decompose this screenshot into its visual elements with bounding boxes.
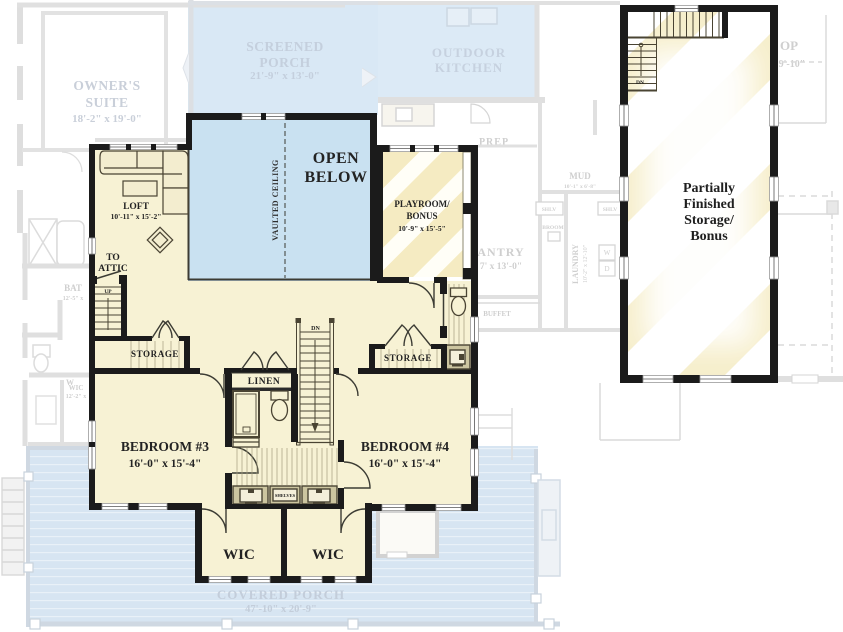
svg-text:STORAGE: STORAGE — [384, 353, 432, 363]
svg-text:BEDROOM #3: BEDROOM #3 — [121, 439, 209, 454]
svg-text:SHLV: SHLV — [542, 207, 557, 213]
svg-text:SCREENED: SCREENED — [246, 39, 324, 54]
svg-text:DN: DN — [311, 326, 320, 332]
svg-text:10'-2" x 12'-10": 10'-2" x 12'-10" — [583, 244, 589, 283]
svg-text:18'-2" x 19'-0": 18'-2" x 19'-0" — [72, 113, 142, 125]
svg-text:WIC: WIC — [69, 384, 84, 392]
svg-text:10'-1" x 6'-8": 10'-1" x 6'-8" — [564, 184, 596, 190]
svg-text:BEDROOM #4: BEDROOM #4 — [361, 439, 449, 454]
svg-text:TO: TO — [106, 253, 120, 263]
svg-text:OWNER'S: OWNER'S — [73, 78, 140, 93]
svg-text:LAUNDRY: LAUNDRY — [571, 244, 580, 284]
svg-text:21'-9" x 13'-0": 21'-9" x 13'-0" — [250, 70, 320, 82]
svg-text:Finished: Finished — [683, 197, 735, 212]
svg-text:OPEN: OPEN — [313, 150, 359, 167]
svg-text:OP: OP — [780, 38, 798, 53]
svg-text:PLAYROOM/: PLAYROOM/ — [394, 199, 450, 209]
svg-text:BONUS: BONUS — [406, 211, 437, 221]
svg-text:D: D — [604, 265, 609, 273]
svg-text:Partially: Partially — [683, 181, 735, 196]
svg-text:ATTIC: ATTIC — [98, 264, 128, 274]
svg-text:OUTDOOR: OUTDOOR — [432, 45, 506, 60]
svg-text:47'-10" x 20'-9": 47'-10" x 20'-9" — [245, 604, 317, 615]
svg-text:16'-0" x 15'-4": 16'-0" x 15'-4" — [369, 458, 442, 470]
svg-text:SUITE: SUITE — [85, 95, 128, 110]
svg-text:SHELVES: SHELVES — [275, 493, 296, 498]
svg-text:WIC: WIC — [223, 547, 255, 563]
svg-text:9'-10": 9'-10" — [779, 59, 806, 70]
svg-text:16'-0" x 15'-4": 16'-0" x 15'-4" — [129, 458, 202, 470]
svg-text:VAULTED CEILING: VAULTED CEILING — [271, 159, 280, 241]
svg-text:MUD: MUD — [569, 171, 591, 181]
svg-text:UP: UP — [104, 289, 112, 295]
svg-text:Bonus: Bonus — [690, 229, 728, 244]
svg-text:W: W — [604, 249, 611, 257]
svg-text:12'-2" x: 12'-2" x — [66, 394, 87, 400]
svg-text:DN: DN — [636, 80, 644, 86]
svg-text:COVERED PORCH: COVERED PORCH — [217, 587, 345, 602]
svg-text:LINEN: LINEN — [248, 377, 281, 387]
svg-text:BAT: BAT — [64, 283, 82, 293]
svg-text:WIC: WIC — [312, 547, 344, 563]
svg-text:Storage/: Storage/ — [684, 213, 735, 228]
svg-text:LOFT: LOFT — [123, 202, 150, 212]
svg-text:10'-11" x 15'-2": 10'-11" x 15'-2" — [111, 212, 162, 221]
svg-text:ANTRY: ANTRY — [477, 245, 524, 259]
svg-text:10'-9" x 15'-5": 10'-9" x 15'-5" — [398, 224, 446, 233]
svg-text:KITCHEN: KITCHEN — [435, 60, 503, 75]
svg-text:BROOM: BROOM — [542, 225, 564, 231]
svg-text:BUFFET: BUFFET — [483, 310, 511, 318]
svg-text:PORCH: PORCH — [259, 55, 310, 70]
svg-text:SHLV: SHLV — [603, 207, 618, 213]
svg-text:7' x 13'-0": 7' x 13'-0" — [480, 262, 522, 272]
svg-text:STORAGE: STORAGE — [131, 349, 179, 359]
svg-text:BELOW: BELOW — [305, 169, 368, 186]
svg-text:12'-5" x: 12'-5" x — [63, 296, 84, 302]
